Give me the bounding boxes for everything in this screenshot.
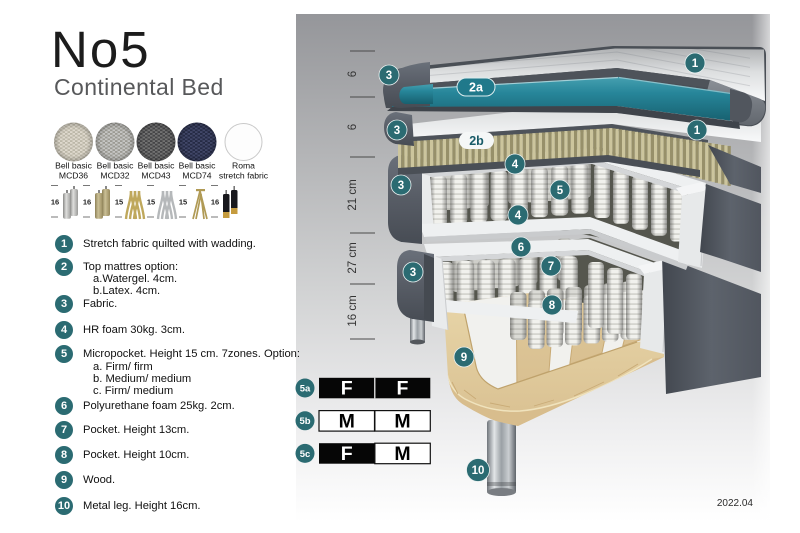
svg-text:Bell basic: Bell basic — [138, 161, 175, 171]
svg-text:2b: 2b — [469, 134, 484, 148]
svg-text:3: 3 — [386, 70, 392, 82]
svg-text:6: 6 — [347, 124, 359, 130]
svg-text:10: 10 — [472, 465, 485, 477]
svg-text:6: 6 — [347, 71, 359, 77]
svg-text:21 cm: 21 cm — [347, 179, 359, 210]
svg-text:Roma: Roma — [232, 161, 255, 171]
svg-text:1: 1 — [694, 125, 701, 137]
svg-text:stretch fabric: stretch fabric — [219, 171, 269, 181]
svg-text:2022.04: 2022.04 — [717, 498, 754, 509]
svg-text:16: 16 — [211, 198, 219, 207]
svg-text:MCD74: MCD74 — [182, 171, 211, 181]
svg-text:9: 9 — [461, 352, 467, 364]
svg-text:4: 4 — [515, 210, 522, 222]
svg-text:F: F — [397, 378, 409, 400]
svg-text:27 cm: 27 cm — [347, 242, 359, 273]
svg-text:M: M — [394, 443, 410, 465]
svg-text:16 cm: 16 cm — [347, 295, 359, 326]
svg-text:5: 5 — [557, 185, 564, 197]
svg-text:Bell basic: Bell basic — [55, 161, 92, 171]
svg-text:2a: 2a — [469, 81, 484, 95]
svg-text:8: 8 — [549, 300, 556, 312]
svg-text:Bell basic: Bell basic — [97, 161, 134, 171]
svg-text:MCD36: MCD36 — [59, 171, 88, 181]
svg-text:M: M — [339, 410, 355, 432]
svg-text:15: 15 — [115, 198, 123, 207]
svg-text:6: 6 — [518, 242, 524, 254]
svg-text:16: 16 — [51, 198, 59, 207]
svg-text:16: 16 — [83, 198, 91, 207]
svg-text:Bell basic: Bell basic — [179, 161, 216, 171]
svg-text:5c: 5c — [300, 449, 311, 460]
svg-text:5b: 5b — [299, 416, 310, 427]
svg-text:F: F — [341, 443, 353, 465]
svg-text:4: 4 — [512, 159, 519, 171]
svg-text:F: F — [341, 378, 353, 400]
svg-text:15: 15 — [179, 198, 187, 207]
svg-text:7: 7 — [548, 261, 554, 273]
svg-text:3: 3 — [410, 267, 416, 279]
svg-text:M: M — [394, 410, 410, 432]
svg-text:15: 15 — [147, 198, 155, 207]
svg-text:MCD32: MCD32 — [100, 171, 129, 181]
svg-text:5a: 5a — [300, 383, 311, 394]
svg-text:3: 3 — [398, 180, 404, 192]
svg-text:MCD43: MCD43 — [141, 171, 170, 181]
svg-text:1: 1 — [692, 58, 699, 70]
svg-text:3: 3 — [394, 125, 400, 137]
